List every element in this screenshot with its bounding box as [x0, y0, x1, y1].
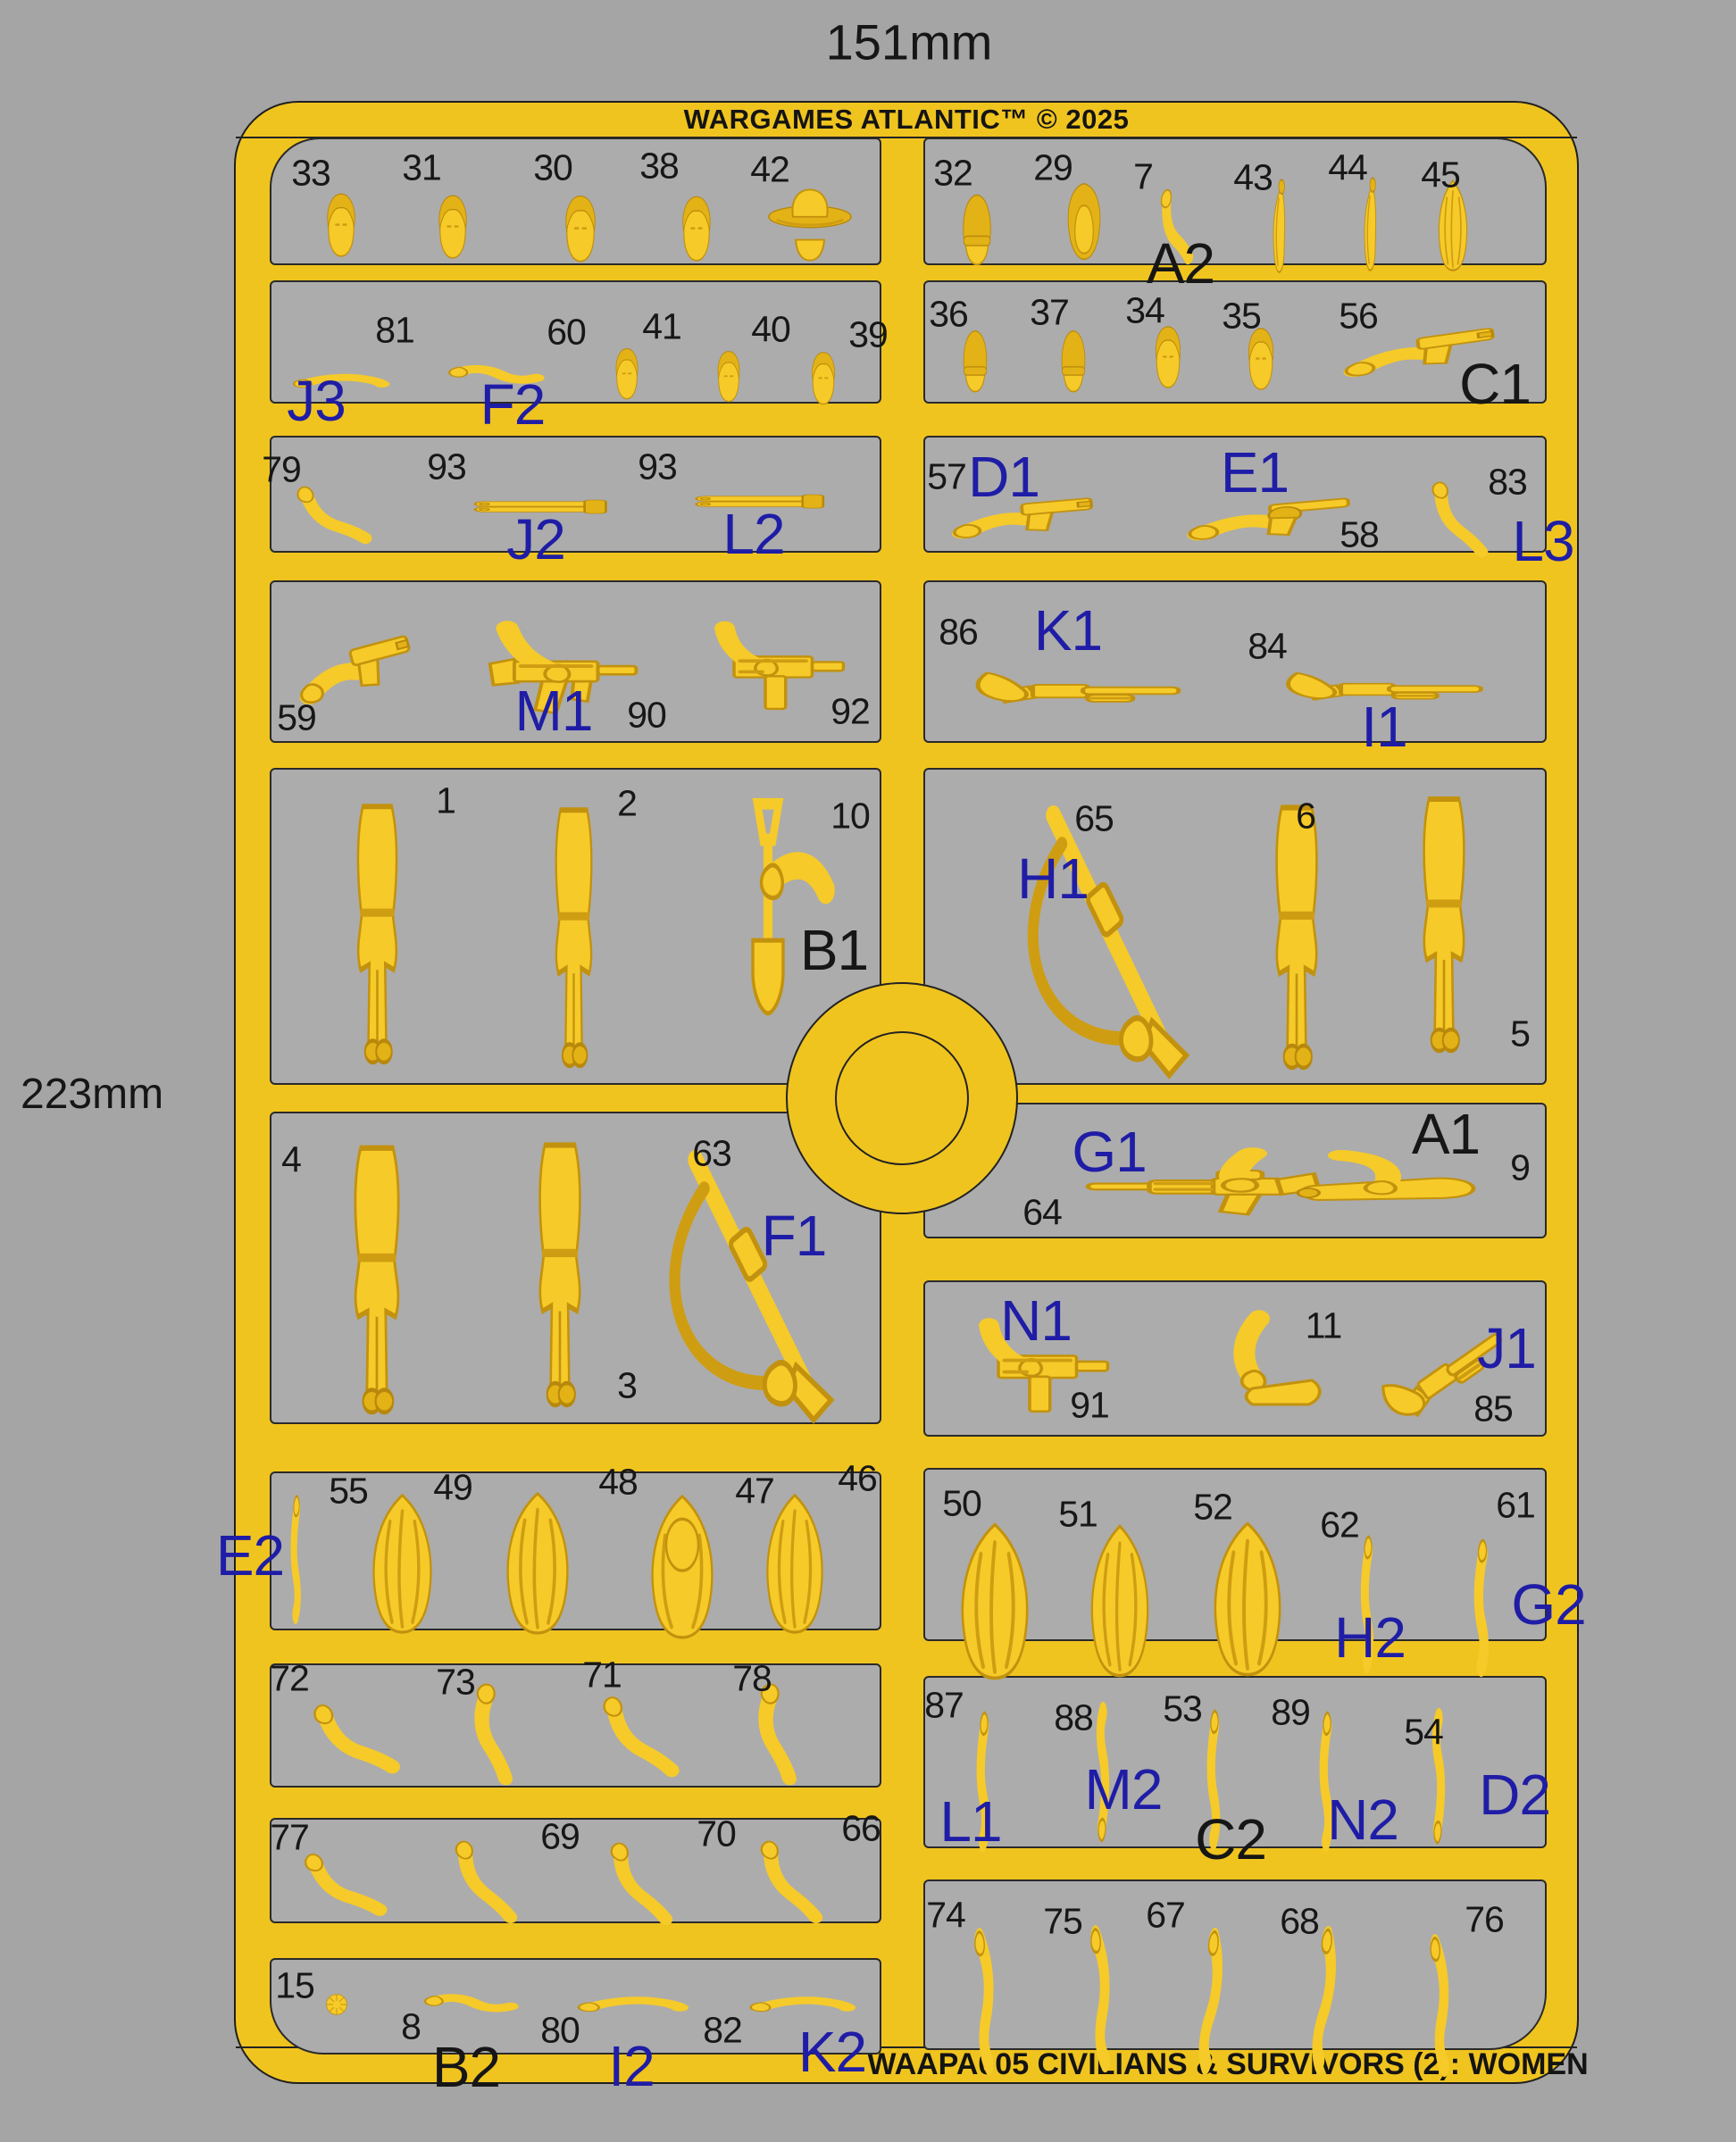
part-number: 32 [933, 153, 972, 195]
part-number: 61 [1496, 1485, 1535, 1527]
part-number: 88 [1054, 1697, 1093, 1739]
frame-letter-label: C1 [1459, 351, 1531, 417]
part-number: 52 [1193, 1487, 1232, 1529]
part-arm-long [1410, 1930, 1473, 2078]
part-arm-long [1170, 1921, 1255, 2079]
frame-letter-label: N2 [1327, 1787, 1398, 1853]
width-dimension-label: 151mm [826, 13, 993, 71]
frame-letter-label: D2 [1479, 1762, 1550, 1828]
part-number: 30 [533, 147, 572, 189]
part-number: 83 [1488, 462, 1527, 504]
part-number: 63 [692, 1133, 731, 1175]
part-number: 15 [275, 1965, 314, 2007]
part-number: 58 [1340, 514, 1379, 556]
part-number: 91 [1070, 1385, 1109, 1427]
frame-letter-label: M1 [515, 678, 593, 744]
part-number: 49 [433, 1467, 472, 1509]
part-number: 85 [1473, 1388, 1513, 1430]
sprue-frame: WARGAMES ATLANTIC™ © 2025 WAAPA005 CIVIL… [234, 101, 1579, 2084]
part-hair [484, 1488, 591, 1638]
part-body [522, 796, 625, 1069]
part-number: 3 [617, 1365, 637, 1407]
part-number: 78 [732, 1658, 772, 1700]
part-number: 7 [1133, 156, 1153, 198]
frame-letter-label: B2 [432, 2034, 500, 2100]
part-number: 2 [617, 783, 637, 825]
part-head [315, 187, 367, 260]
part-number: 50 [942, 1483, 981, 1525]
part-number: 62 [1320, 1504, 1359, 1546]
part-number: 76 [1465, 1899, 1504, 1941]
part-arm-bent-side [418, 1979, 523, 2031]
part-number: 57 [927, 456, 966, 498]
part-head [606, 343, 647, 402]
part-rifle-sling [643, 1143, 862, 1429]
part-number: 45 [1421, 154, 1460, 196]
part-number: 64 [1022, 1192, 1062, 1234]
part-number: 5 [1510, 1013, 1530, 1055]
frame-letter-label: H1 [1017, 846, 1089, 912]
part-number: 54 [1404, 1712, 1443, 1754]
height-dimension-label: 223mm [21, 1070, 163, 1119]
part-number: 89 [1271, 1692, 1310, 1734]
part-arm-shovel [692, 795, 844, 1022]
part-number: 68 [1280, 1901, 1319, 1943]
part-number: 87 [924, 1685, 964, 1727]
part-head-beanie [948, 182, 1006, 268]
frame-letter-label: A2 [1147, 230, 1214, 296]
part-number: 9 [1510, 1147, 1530, 1189]
frame-letter-label: L2 [722, 501, 784, 567]
part-number: 36 [929, 294, 968, 336]
frame-letter-label: M2 [1085, 1756, 1163, 1822]
frame-letter-label: J1 [1477, 1315, 1536, 1381]
part-head [553, 188, 608, 265]
frame-letter-label: L1 [939, 1788, 1001, 1854]
frame-letter-label: B1 [800, 917, 868, 983]
part-number: 66 [841, 1808, 881, 1850]
part-head-hood [1057, 179, 1111, 263]
frame-letter-label: I1 [1361, 694, 1406, 760]
part-number: 56 [1339, 296, 1378, 338]
part-hair [1070, 1520, 1170, 1680]
part-head [427, 188, 479, 262]
frame-letter-label: J2 [506, 506, 565, 572]
part-number: 77 [270, 1817, 309, 1859]
part-arm-bent [587, 1823, 707, 1934]
frame-letter-label: F1 [762, 1203, 827, 1269]
part-number: 6 [1296, 796, 1315, 838]
part-arm-raised [1452, 1533, 1513, 1678]
part-number: 40 [751, 309, 790, 351]
frame-letter-label: L3 [1512, 508, 1573, 574]
part-arm-long [1283, 1919, 1368, 2078]
part-hair-face [629, 1490, 736, 1642]
frame-letter-label: N1 [1000, 1288, 1072, 1354]
part-hair [1189, 1517, 1306, 1679]
frame-letter-label: E1 [1221, 439, 1289, 505]
part-number: 60 [547, 312, 586, 354]
part-arm-bent [431, 1821, 552, 1932]
frame-letter-label: H2 [1334, 1604, 1406, 1671]
frame-letter-label: J3 [287, 368, 346, 434]
frame-letter-label: C2 [1195, 1806, 1266, 1872]
part-number: 10 [830, 796, 870, 838]
part-number: 33 [291, 153, 330, 195]
frame-letter-label: F2 [480, 371, 546, 438]
part-arm-straight [572, 1979, 690, 2029]
part-number: 67 [1146, 1895, 1185, 1937]
part-body-inverted [502, 1131, 618, 1408]
part-head [671, 189, 722, 264]
part-number: 65 [1074, 798, 1114, 840]
part-number: 53 [1163, 1688, 1202, 1730]
part-number: 92 [830, 691, 870, 733]
part-head [802, 346, 845, 407]
part-hair-bun [320, 1988, 354, 2021]
part-number: 90 [627, 695, 666, 737]
part-number: 11 [1306, 1305, 1342, 1347]
items-layer: 333130384232297434445A28160414039J3F2363… [236, 103, 1577, 2082]
part-hair [351, 1489, 454, 1637]
part-rifle-sling [1002, 798, 1216, 1084]
part-number: 29 [1033, 147, 1072, 189]
part-number: 34 [1125, 290, 1164, 332]
part-number: 41 [642, 306, 681, 348]
part-number: 59 [277, 697, 316, 739]
part-number: 38 [639, 146, 679, 188]
part-body [314, 1134, 439, 1415]
part-number: 80 [540, 2010, 580, 2052]
part-arm-long [1070, 1921, 1134, 2073]
part-number: 44 [1328, 147, 1367, 189]
part-arm-bent [299, 1838, 397, 1920]
part-head [708, 346, 749, 404]
part-head-cowboy-hat [765, 184, 855, 266]
part-number: 84 [1248, 626, 1287, 668]
part-number: 86 [939, 612, 978, 654]
part-number: 43 [1233, 157, 1273, 199]
part-body-inverted [1386, 786, 1502, 1054]
part-number: 72 [270, 1658, 309, 1700]
part-number: 79 [262, 449, 301, 491]
part-number: 46 [838, 1458, 877, 1500]
part-number: 31 [402, 147, 441, 189]
part-number: 1 [436, 780, 455, 822]
part-number: 69 [540, 1816, 580, 1858]
part-hair [937, 1518, 1053, 1683]
part-number: 35 [1222, 296, 1261, 338]
part-number: 73 [436, 1662, 475, 1704]
part-hair [746, 1489, 844, 1637]
part-number: 39 [848, 314, 888, 356]
frame-letter-label: K1 [1034, 597, 1102, 663]
part-number: 93 [638, 446, 677, 488]
frame-letter-label: A1 [1412, 1101, 1480, 1167]
part-number: 70 [697, 1813, 736, 1855]
part-number: 74 [926, 1895, 965, 1937]
frame-letter-label: K2 [798, 2019, 866, 2085]
frame-letter-label: G2 [1511, 1571, 1585, 1638]
part-number: 37 [1030, 292, 1069, 334]
part-number: 4 [281, 1139, 301, 1181]
part-hair-ponytail [1349, 175, 1390, 275]
sprue-diagram: 151mm 223mm WARGAMES ATLANTIC™ © 2025 WA… [0, 0, 1736, 2142]
part-number: 81 [375, 310, 414, 352]
part-arm-bent [292, 471, 381, 547]
frame-letter-label: D1 [968, 444, 1039, 510]
part-number: 51 [1058, 1494, 1098, 1536]
part-number: 8 [401, 2006, 421, 2048]
part-body-inverted [321, 793, 433, 1065]
part-number: 42 [750, 149, 789, 191]
frame-letter-label: E2 [216, 1522, 284, 1588]
frame-letter-label: G1 [1072, 1119, 1146, 1185]
part-arm-long [954, 1924, 1018, 2076]
part-number: 75 [1043, 1901, 1082, 1943]
part-arm-bent [308, 1687, 411, 1778]
part-number: 82 [703, 2010, 742, 2052]
part-arm-bent [737, 1821, 857, 1932]
frame-letter-label: I2 [608, 2033, 654, 2099]
part-number: 71 [582, 1654, 622, 1696]
part-number: 93 [427, 446, 466, 488]
